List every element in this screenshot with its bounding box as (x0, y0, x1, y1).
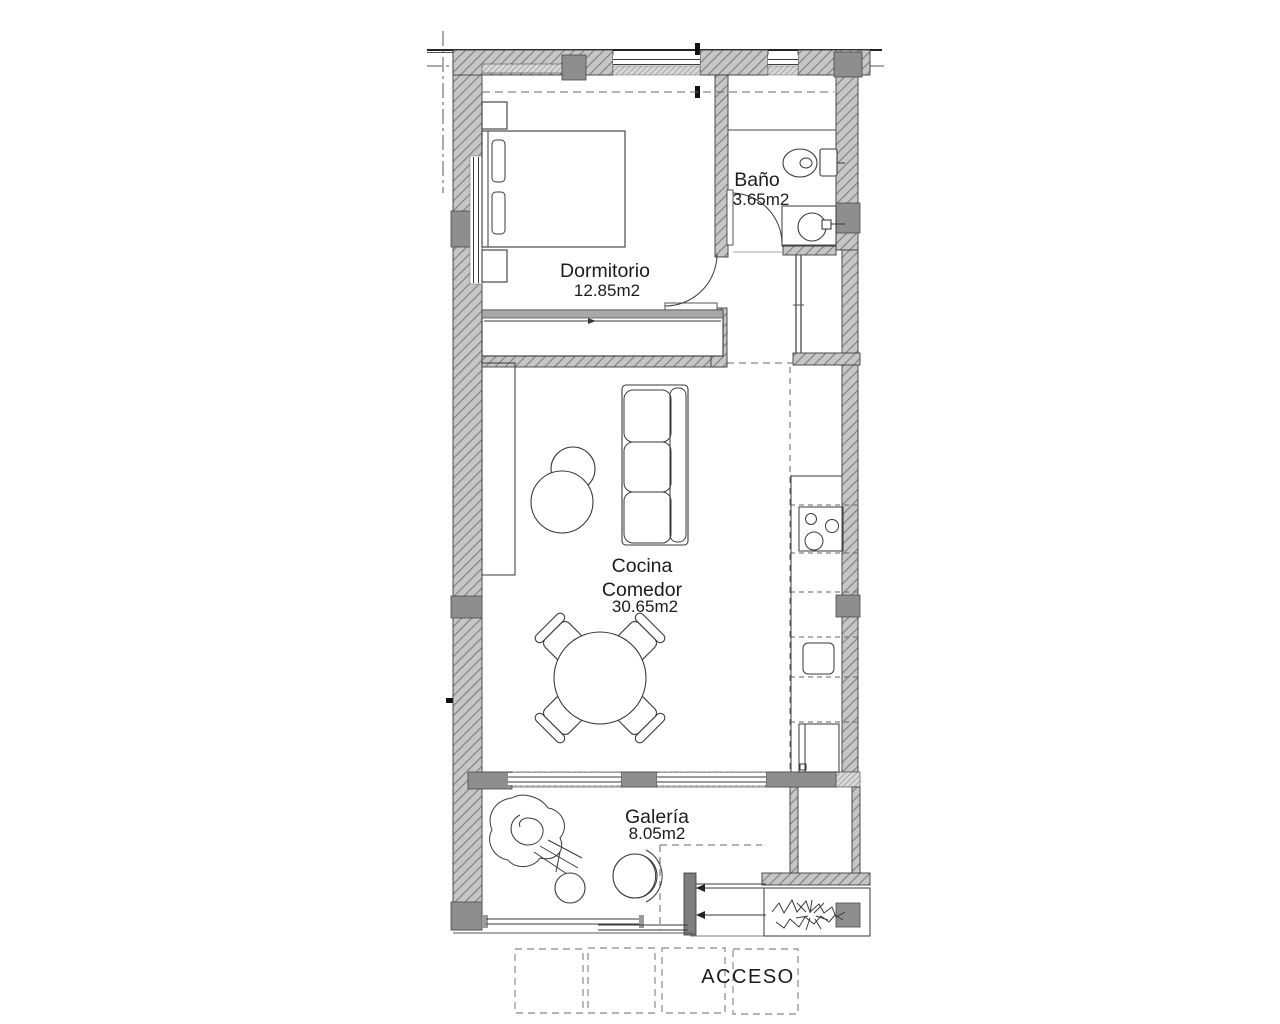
east-wall-main (842, 250, 858, 772)
sink-tap (822, 220, 831, 229)
north-wall-liner (482, 64, 562, 73)
dining-set (533, 611, 666, 744)
pillar-west-2 (451, 596, 482, 618)
wardrobe-track (482, 310, 723, 318)
pillar-top-1 (562, 55, 586, 80)
stove-burner-2 (826, 520, 839, 533)
slider-gap-2 (657, 773, 766, 785)
wall-block-south-3 (766, 772, 836, 787)
bed (482, 131, 625, 247)
sofa (622, 385, 688, 545)
access-dashed-square-2 (588, 948, 655, 1013)
window-sill (768, 66, 798, 75)
entry-corridor-wall-east (852, 787, 860, 875)
nightstand-1 (482, 102, 507, 129)
north-window-1 (613, 55, 700, 75)
slider-gap-1 (508, 773, 621, 785)
kitchen-sink (803, 643, 834, 674)
plant-foliage (490, 795, 565, 866)
acceso-label: ACCESO (701, 966, 794, 988)
toilet-tank (820, 149, 837, 176)
bedroom-bath-wall (715, 75, 728, 257)
entry-steps (690, 884, 766, 936)
toilet (783, 149, 845, 177)
lounge-chair (531, 447, 595, 533)
bedroom-south-wall (482, 356, 727, 367)
pillar-west-3 (451, 902, 482, 930)
gallery-table (555, 873, 585, 903)
entry-corridor-wall-west (790, 787, 798, 875)
closet-south-wall (793, 353, 860, 365)
sofa-outline (622, 385, 688, 545)
dormitorio-area: 12.85m2 (574, 281, 640, 300)
cocina-label: Cocina (612, 555, 673, 577)
planter-shrub-1 (772, 900, 845, 917)
glazing-cap-2 (639, 915, 644, 928)
glazing-cap-1 (483, 915, 488, 928)
gallery-plant (490, 795, 582, 876)
wall-block-south-2 (621, 772, 657, 787)
wall-block-south-1 (468, 772, 512, 789)
bano-area: 3.65m2 (733, 190, 790, 209)
gallery-post (684, 873, 696, 935)
hall-closet (793, 255, 804, 353)
plant-inner (511, 815, 543, 845)
cocina-area: 30.65m2 (612, 597, 678, 616)
entry-arrow-1 (696, 884, 705, 892)
access-dashed-square-1 (515, 949, 583, 1013)
floor-plan-svg: Dormitorio 12.85m2 Baño 3.65m2 Cocina Co… (0, 0, 1280, 1024)
stove-burner-3 (805, 532, 823, 550)
nightstand-2 (482, 250, 507, 282)
wardrobe (482, 310, 723, 356)
window-gap (470, 156, 482, 284)
entry-arrow-2 (696, 911, 705, 919)
bedroom-door-leaf (665, 303, 717, 310)
galeria-area: 8.05m2 (629, 824, 686, 843)
pillar-bath-shelf (836, 203, 860, 233)
kitchen-counter (791, 475, 843, 772)
dining-table (554, 632, 646, 724)
bano-label: Baño (734, 169, 780, 191)
dormitorio-label: Dormitorio (560, 260, 650, 282)
entry-south-wall (762, 873, 870, 885)
room-labels: Dormitorio 12.85m2 Baño 3.65m2 Cocina Co… (560, 169, 795, 988)
pillar-east-1 (836, 595, 860, 617)
stove-burner-1 (806, 514, 817, 525)
bath-sink (782, 206, 845, 246)
north-wall-b (700, 50, 768, 75)
bedroom-door-swing-arc (665, 254, 717, 306)
window-sill (613, 66, 700, 75)
lounge-chair-circle (531, 471, 593, 533)
bedroom-door (665, 254, 717, 310)
north-window-2 (768, 55, 798, 75)
bedroom-west-window (470, 156, 482, 284)
west-sideboard (482, 363, 515, 575)
planter-shrub-2 (776, 915, 843, 928)
bathroom-fixtures (782, 149, 845, 246)
gallery-chair (613, 850, 662, 902)
floor-plan-page: Dormitorio 12.85m2 Baño 3.65m2 Cocina Co… (0, 0, 1280, 1024)
pillar-top-2 (834, 52, 862, 77)
bedroom-furniture (482, 102, 723, 356)
planter-burst (796, 900, 828, 930)
gallery-glazing (453, 915, 693, 933)
